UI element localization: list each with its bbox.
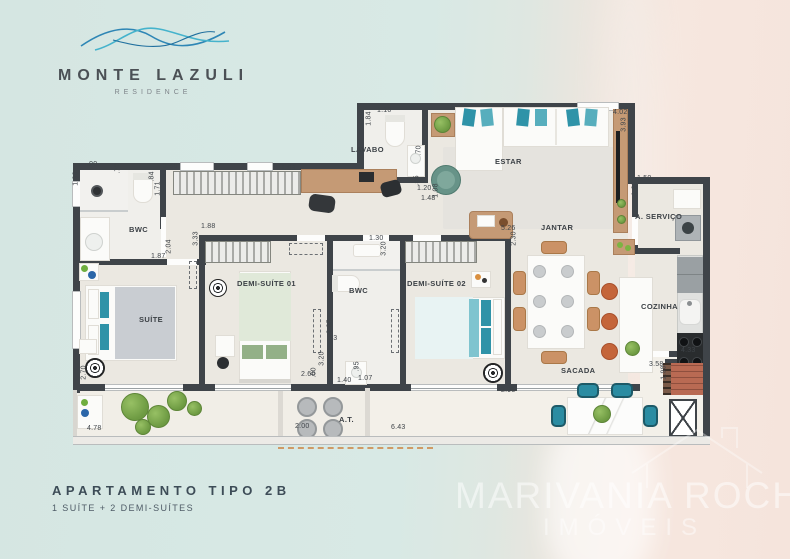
pillow-accent (266, 345, 287, 359)
dining-chair (587, 271, 600, 295)
plant (625, 341, 640, 356)
dimension-label: 1.71 (155, 181, 162, 195)
dimension-label: 2.00 (295, 423, 309, 430)
window (247, 162, 273, 171)
brand-logo: MONTE LAZULI RESIDENCE (58, 16, 248, 96)
wall (703, 177, 710, 445)
round-rug (209, 279, 227, 297)
faucet (687, 301, 692, 306)
plant (593, 405, 611, 423)
dining-chair (513, 307, 526, 331)
plant (617, 199, 626, 208)
room-label: DEMI-SUÍTE 02 (407, 279, 466, 288)
pillow-accent (100, 324, 109, 350)
low-wall (278, 388, 283, 438)
dimension-label: .90 (87, 161, 97, 168)
wardrobe (205, 241, 271, 263)
dimension-label: 1.98 (661, 365, 668, 379)
dimension-label: .70 (416, 145, 423, 155)
sofa-pillow (462, 108, 476, 127)
room-label: COZINHA (641, 302, 678, 311)
plant (617, 215, 626, 224)
dimension-label: 1.60 (632, 181, 639, 195)
room-label: LAVABO (351, 145, 384, 154)
decor-bowl (482, 278, 487, 283)
plate (561, 325, 574, 338)
plate (533, 295, 546, 308)
toilet-tank (332, 275, 338, 292)
stool (601, 283, 618, 300)
small-chair (217, 357, 229, 369)
cutting-board (613, 239, 635, 255)
sofa-pillow (584, 109, 597, 127)
brand-name: MONTE LAZULI (58, 67, 248, 85)
balcony-chair (577, 383, 599, 398)
room-label: SACADA (561, 366, 595, 375)
room-label: DEMI-SUÍTE 01 (237, 279, 296, 288)
dashed-outline (289, 243, 323, 255)
pillow-accent (481, 328, 491, 354)
wardrobe (405, 241, 477, 263)
dimension-label: 3.33 (193, 231, 200, 245)
kitchen-island (619, 277, 653, 373)
toilet-tank (385, 115, 405, 122)
room-label: A.T. (339, 415, 354, 424)
burner (679, 337, 689, 347)
shower-floor (80, 170, 128, 212)
plant (135, 419, 151, 435)
dimension-label: .84 (149, 171, 156, 181)
fridge (677, 257, 703, 293)
pillow (493, 299, 502, 355)
decor-bowl (81, 265, 88, 272)
pillow (88, 289, 99, 319)
sofa-seam (555, 109, 557, 145)
decor-bowl (475, 274, 481, 280)
sink-basin (85, 233, 103, 251)
dimension-label: 4.78 (87, 425, 101, 432)
dashed-outline (189, 261, 197, 289)
balcony-chair (551, 405, 566, 427)
demi2-duvet (415, 297, 473, 359)
glass-door (411, 384, 497, 391)
room-label: ESTAR (495, 157, 522, 166)
watermark-subtitle: IMÓVEIS (543, 514, 706, 542)
sofa-pillow (566, 108, 580, 126)
glass-door (105, 384, 183, 391)
dimension-label: 4.02 (613, 109, 627, 116)
floor-plan: BWCSUÍTEDEMI-SUÍTE 01BWCDEMI-SUÍTE 02LAV… (65, 95, 710, 445)
ac-condenser (297, 397, 317, 417)
dimension-label: 1.40 (337, 377, 351, 384)
dimension-label: 1.10 (377, 107, 391, 114)
tv (616, 131, 620, 203)
wave-logo-icon (73, 16, 233, 60)
wall (505, 235, 511, 390)
round-rug (483, 363, 503, 383)
wardrobe (173, 171, 301, 195)
round-rug (85, 358, 105, 378)
sofa-pillow (516, 108, 530, 126)
lime (617, 242, 623, 248)
dimension-label: 2.30 (511, 231, 518, 245)
shower-head-icon (91, 185, 103, 197)
desk-chair (308, 193, 336, 213)
plant (121, 393, 149, 421)
sofa-pillow (480, 108, 494, 126)
stool (601, 343, 618, 360)
room-label: BWC (129, 225, 148, 234)
dashed-outline (391, 309, 399, 353)
room-label: SUÍTE (139, 315, 163, 324)
dimension-label: 6.43 (391, 424, 405, 431)
decor-bowl (88, 271, 96, 279)
dimension-label: .72 (115, 163, 122, 173)
small-desk (215, 335, 235, 357)
property-line (278, 447, 433, 449)
pillow-accent (242, 345, 263, 359)
decor-bowl (81, 409, 89, 417)
washer-door (682, 222, 694, 234)
room-label: A. SERVIÇO (635, 212, 682, 221)
plate (561, 295, 574, 308)
dining-chair (541, 351, 567, 364)
wall (357, 103, 364, 170)
window (180, 162, 214, 171)
balcony-chair (611, 383, 633, 398)
lime (625, 245, 631, 251)
bed-runner (469, 299, 479, 357)
shower-tray (353, 244, 381, 257)
dimension-label: 1.08 (433, 183, 440, 197)
watermark-name: MARIVANIA ROCHA (455, 475, 790, 517)
dining-chair (587, 307, 600, 331)
dining-chair (513, 271, 526, 295)
dimension-label: 1.84 (366, 111, 373, 125)
dimension-label: 1.90 (73, 171, 80, 185)
dimension-label: 1.20 (417, 185, 431, 192)
dining-chair (541, 241, 567, 254)
door-opening (297, 235, 325, 241)
plate (561, 265, 574, 278)
plant (434, 116, 451, 133)
plant (167, 391, 187, 411)
pillow-accent (100, 292, 109, 318)
plate (533, 265, 546, 278)
nightstand (79, 339, 97, 354)
nightstand (471, 271, 491, 288)
dimension-label: 2.60 (301, 371, 315, 378)
dimension-label: 3.20 (319, 351, 326, 365)
room-label: BWC (349, 286, 368, 295)
pillow-accent (481, 300, 491, 326)
dimension-label: 3.68 (163, 163, 177, 170)
dimension-label: 1.88 (201, 223, 215, 230)
wall (628, 103, 635, 184)
dimension-label: 3.93 (621, 117, 628, 131)
room-label: JANTAR (541, 223, 573, 232)
glass-door (215, 384, 291, 391)
dimension-label: 2.70 (81, 365, 88, 379)
dimension-label: 2.04 (166, 239, 173, 253)
dimension-label: 2.95 (501, 387, 515, 394)
wall (632, 248, 680, 254)
tray (477, 215, 495, 227)
apartment-subtitle: 1 SUÍTE + 2 DEMI-SUÍTES (52, 503, 291, 513)
dimension-label: 1.07 (358, 375, 372, 382)
low-wall (365, 388, 370, 438)
dashed-outline (313, 309, 321, 353)
apartment-title: APARTAMENTO TIPO 2B (52, 483, 291, 498)
dimension-label: 3.20 (381, 241, 388, 255)
sofa-pillow (535, 109, 547, 126)
plate (533, 325, 546, 338)
headboard (239, 379, 291, 383)
dimension-label: 1.83 (281, 165, 295, 172)
stool (601, 313, 618, 330)
dimension-label: .23 (327, 335, 337, 342)
sliding-door (517, 384, 623, 391)
plant (187, 401, 202, 416)
dimension-label: .95 (354, 361, 361, 371)
laundry-tank (673, 189, 701, 209)
shower-glass (80, 210, 128, 212)
dimension-label: 1.50 (637, 175, 651, 182)
decor-bowl (81, 399, 88, 406)
burner (692, 337, 702, 347)
title-block: APARTAMENTO TIPO 2B 1 SUÍTE + 2 DEMI-SUÍ… (52, 483, 291, 513)
page: MONTE LAZULI RESIDENCE (0, 0, 790, 559)
fridge-seam (677, 274, 703, 275)
barbecue-bricks (671, 363, 703, 395)
shower-glass (333, 269, 400, 271)
ac-condenser (323, 397, 343, 417)
laptop (359, 172, 374, 182)
dimension-label: 2.35 (327, 319, 334, 333)
dimension-label: 4.33 (681, 347, 695, 354)
dimension-label: 1.87 (151, 253, 165, 260)
